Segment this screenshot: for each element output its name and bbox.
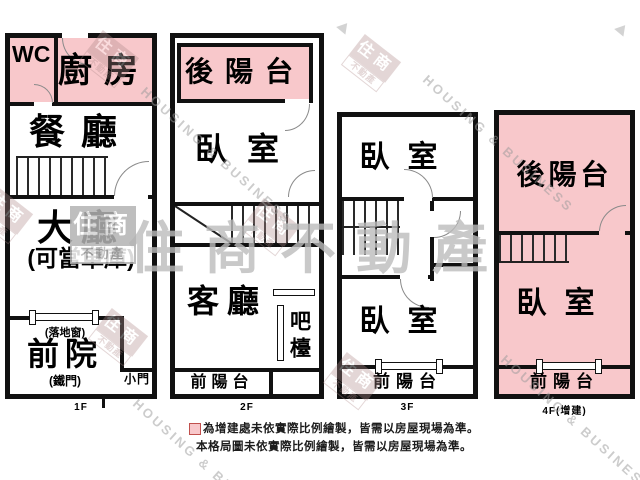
door-arc-dining bbox=[114, 161, 149, 196]
watermark-logo-bottom: 不動產 bbox=[70, 244, 136, 264]
watermark-logo: 住商 不動產 bbox=[70, 206, 136, 264]
stairs-4f bbox=[499, 235, 569, 263]
gate-tick-1f bbox=[102, 395, 105, 408]
bar-counter-side bbox=[277, 305, 284, 361]
wall-living-bottom-2f bbox=[273, 368, 319, 372]
room-label-dining: 餐廳 bbox=[10, 112, 152, 152]
room-label-back-balcony-2f: 後陽台 bbox=[177, 56, 313, 87]
label-side-door: 小門 bbox=[122, 373, 152, 386]
room-label-bedroom-4f: 臥室 bbox=[499, 287, 630, 321]
door-gap-balcony-4f bbox=[599, 231, 625, 235]
wall-kitchen-bottom bbox=[10, 102, 152, 106]
watermark-brand-text: 住商不動產 bbox=[128, 204, 508, 285]
room-label-wc: WC bbox=[12, 42, 50, 68]
floorplan-canvas: WC 廚房 餐廳 大廳 (可當車庫) (落地窗) 前院 (鐵門) 小門 1F 後… bbox=[0, 0, 640, 480]
window-symbol-3f bbox=[378, 362, 440, 370]
watermark-logo-top: 住商 bbox=[70, 206, 136, 244]
room-label-bedroom-lower-3f: 臥室 bbox=[342, 305, 473, 339]
window-symbol-4f bbox=[539, 362, 599, 370]
window-symbol-1f bbox=[32, 313, 96, 321]
note-iron-gate: (鐵門) bbox=[10, 375, 120, 388]
door-arc-balcony-4f bbox=[599, 205, 626, 232]
legend-line-2: 本格局圖未依實際比例繪製，皆需以房屋現場為準。 bbox=[196, 438, 472, 454]
stairs-1f bbox=[16, 156, 108, 197]
door-arc-balcony-2f bbox=[285, 104, 310, 131]
floor-label-2f: 2F bbox=[170, 402, 324, 413]
watermark-stamp: 住商 不動產 bbox=[341, 34, 401, 93]
watermark-triangle bbox=[336, 19, 352, 34]
room-label-bar: 吧檯 bbox=[287, 302, 311, 372]
legend-line-1: 為增建處未依實際比例繪製，皆需以房屋現場為準。 bbox=[203, 420, 479, 436]
bar-counter-top bbox=[273, 289, 315, 296]
door-arc-bedroom-2f bbox=[288, 170, 315, 197]
room-label-front-balcony-2f: 前陽台 bbox=[175, 374, 269, 392]
room-label-living: 客廳 bbox=[175, 284, 279, 320]
watermark-triangle bbox=[614, 21, 630, 36]
legend-pink-square bbox=[189, 423, 201, 435]
